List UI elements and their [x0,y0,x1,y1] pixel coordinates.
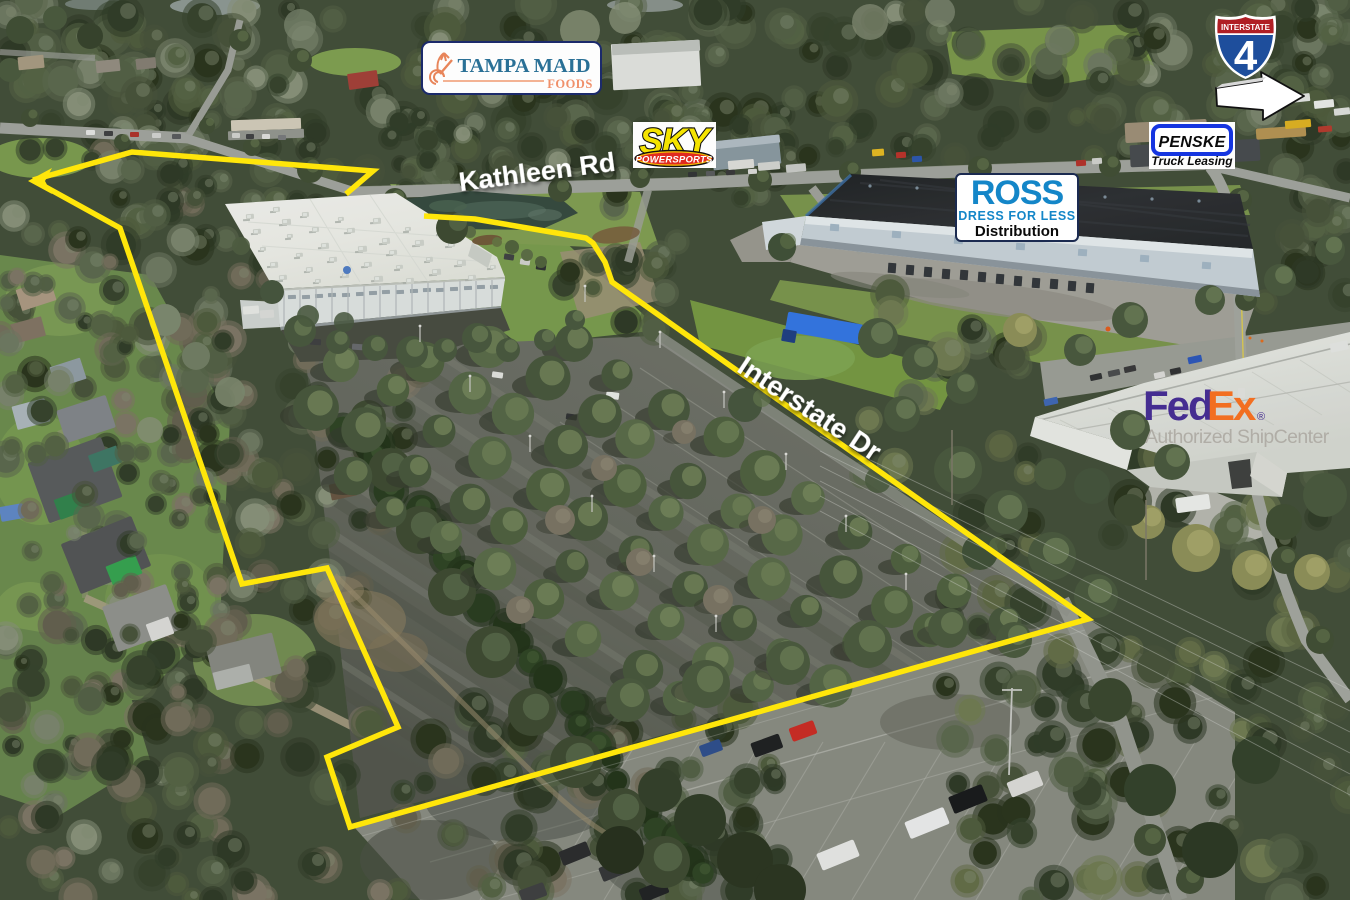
svg-text:ROSS: ROSS [971,174,1064,212]
svg-text:4: 4 [1234,32,1258,79]
svg-text:Ex: Ex [1207,382,1257,429]
svg-text:Truck Leasing: Truck Leasing [1151,154,1233,168]
svg-text:Distribution: Distribution [975,223,1059,240]
svg-text:TAMPA MAID: TAMPA MAID [457,55,590,77]
svg-text:Fed: Fed [1143,382,1212,429]
svg-text:PENSKE: PENSKE [1159,134,1227,151]
svg-text:FOODS: FOODS [547,77,593,91]
svg-text:POWERSPORTS: POWERSPORTS [636,155,713,166]
svg-text:Authorized ShipCenter: Authorized ShipCenter [1145,426,1330,448]
svg-text:DRESS FOR LESS: DRESS FOR LESS [958,209,1075,223]
svg-text:INTERSTATE: INTERSTATE [1221,23,1271,32]
svg-text:®: ® [1257,411,1265,423]
